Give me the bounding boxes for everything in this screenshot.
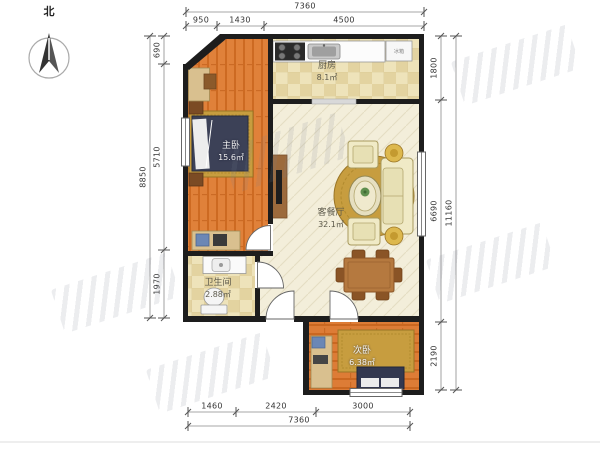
master-bedroom-name: 主卧: [218, 141, 244, 153]
dim-top-seg-3: 4500: [333, 16, 355, 25]
dim-right-seg-1: 1800: [430, 57, 439, 79]
dim-left-seg-2: 5710: [153, 146, 162, 168]
desk-item: [213, 234, 227, 246]
room-label-kitchen: 厨房 8.1㎡: [317, 61, 338, 83]
dim-top-total: 7360: [294, 2, 316, 11]
dim-bottom-seg-1: 1460: [201, 402, 223, 411]
dim-left-seg-1: 690: [153, 42, 162, 58]
tv-icon: [276, 170, 282, 204]
dim-left-seg-3: 1970: [153, 273, 162, 295]
living-dining-area: 32.1㎡: [317, 220, 344, 230]
kitchen-name: 厨房: [317, 61, 338, 73]
living-dining-name: 客餐厅: [317, 208, 344, 220]
dim-top-seg-1: 950: [193, 16, 209, 25]
compass-north-label: 北: [44, 3, 55, 19]
dim-bottom-seg-3: 3000: [352, 402, 374, 411]
bathroom-name: 卫生间: [204, 278, 231, 290]
dim-right-seg-2: 6690: [430, 200, 439, 222]
second-bedroom-area: 6.38㎡: [349, 358, 375, 368]
dining-table: [344, 258, 394, 292]
room-label-bathroom: 卫生间 2.88㎡: [204, 278, 231, 300]
fridge-label: 冰箱: [394, 47, 404, 55]
dim-top-seg-2: 1430: [229, 16, 251, 25]
dim-left-total: 8850: [139, 166, 148, 188]
floor-plan-canvas: 北 厨房 8.1㎡ 主卧 15.6㎡ 客餐厅 32.1㎡ 卫生间 2.88㎡ 次…: [0, 0, 600, 450]
dim-bottom-total: 7360: [288, 416, 310, 425]
nightstand: [189, 173, 203, 186]
laptop: [196, 234, 209, 246]
bathroom-area: 2.88㎡: [204, 290, 231, 300]
room-label-master-bedroom: 主卧 15.6㎡: [218, 141, 244, 163]
second-bedroom-name: 次卧: [349, 346, 375, 358]
stool: [204, 74, 216, 89]
dim-bottom-seg-2: 2420: [265, 402, 287, 411]
room-label-second-bedroom: 次卧 6.38㎡: [349, 346, 375, 368]
bed-pillow: [361, 378, 379, 387]
page-divider: [0, 441, 600, 443]
floor-plan-drawing: [0, 0, 600, 450]
kitchen-opening: [312, 99, 356, 104]
compass-icon: [29, 33, 69, 78]
kitchen-fixtures: [273, 41, 412, 62]
dim-right-seg-3: 2190: [430, 345, 439, 367]
master-bedroom-area: 15.6㎡: [218, 153, 244, 163]
nightstand: [189, 101, 203, 114]
kitchen-area: 8.1㎡: [317, 73, 338, 83]
room-label-living-dining: 客餐厅 32.1㎡: [317, 208, 344, 230]
storage-item: [313, 355, 328, 364]
bed-pillow: [381, 378, 399, 387]
dim-right-total: 11160: [445, 200, 454, 227]
storage-box: [312, 337, 325, 348]
